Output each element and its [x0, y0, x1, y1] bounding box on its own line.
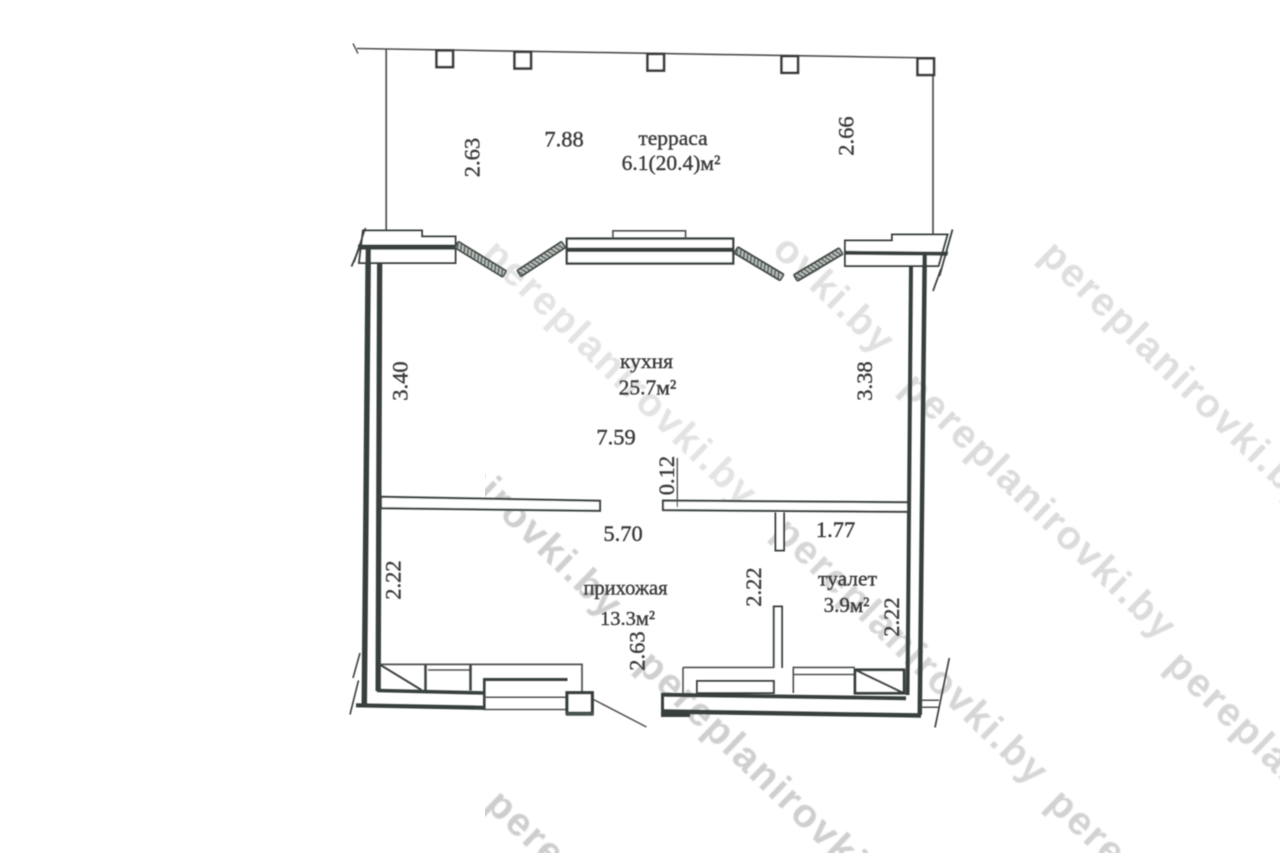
svg-text:2.66: 2.66 — [834, 116, 859, 155]
svg-text:pereplanirovki.by: pereplanirovki.by — [1039, 780, 1280, 853]
svg-text:pereplanirovki.by: pereplanirovki.by — [765, 509, 1058, 794]
svg-text:2.22: 2.22 — [879, 597, 904, 636]
svg-text:pereplanirovki.by: pereplanirovki.by — [1032, 232, 1280, 517]
svg-text:0.12: 0.12 — [654, 456, 679, 495]
svg-text:7.59: 7.59 — [596, 425, 635, 450]
svg-text:5.70: 5.70 — [603, 521, 642, 546]
svg-text:pereplanirovki.by: pereplanirovki.by — [893, 364, 1186, 649]
svg-text:3.38: 3.38 — [852, 361, 877, 400]
svg-text:7.88: 7.88 — [544, 127, 583, 152]
svg-text:pereplanirovki.by: pereplanirovki.by — [474, 231, 767, 516]
svg-text:6.1(20.4)м²: 6.1(20.4)м² — [622, 151, 721, 175]
svg-text:2.63: 2.63 — [625, 631, 650, 670]
svg-text:прихожая: прихожая — [583, 578, 668, 600]
svg-text:pereplanirovki.by: pereplanirovki.by — [478, 781, 771, 853]
svg-text:pereplanirovki.by: pereplanirovki.by — [1158, 642, 1280, 853]
svg-text:2.22: 2.22 — [741, 567, 766, 606]
svg-text:1.77: 1.77 — [816, 517, 855, 542]
svg-text:13.3м²: 13.3м² — [600, 608, 655, 630]
svg-text:2.22: 2.22 — [381, 560, 406, 599]
svg-text:кухня: кухня — [620, 349, 673, 373]
svg-text:2.63: 2.63 — [460, 138, 485, 177]
svg-text:терраса: терраса — [638, 126, 708, 150]
svg-text:туалет: туалет — [818, 567, 878, 591]
svg-text:3.40: 3.40 — [388, 361, 413, 400]
svg-text:3.9м²: 3.9м² — [824, 593, 870, 617]
svg-text:25.7м²: 25.7м² — [619, 376, 677, 400]
